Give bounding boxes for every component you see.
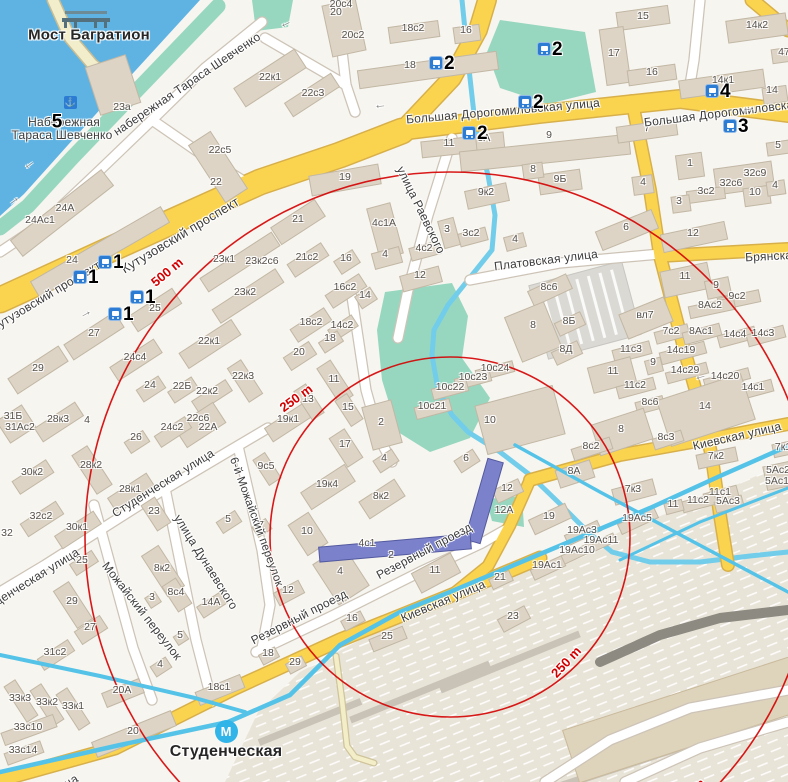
bus-stop-icon[interactable]: [462, 126, 476, 140]
building-number-label: 4: [381, 452, 387, 464]
building-number-label: 22к1: [198, 335, 220, 347]
building-number-label: 24с2: [161, 421, 184, 433]
building-number-label: 26: [130, 431, 142, 443]
bus-stop-icon[interactable]: [73, 270, 87, 284]
building-number-label: 5: [177, 629, 183, 641]
building-number-label: 5Ас1: [765, 475, 788, 487]
building-number-label: 6: [623, 221, 629, 233]
street-name-label: 6-й Можайский переулок: [227, 456, 285, 588]
building-number-label: 10: [749, 186, 761, 198]
building-number-label: 11: [608, 365, 619, 377]
stop-number-marker[interactable]: 2: [533, 93, 544, 112]
building-number-label: 8Д: [560, 343, 573, 355]
building-number-label: 28к3: [47, 413, 69, 425]
building-number-label: 4: [772, 179, 778, 191]
building-number-label: 10: [484, 414, 496, 426]
building-number-label: 16с2: [334, 281, 357, 293]
building-number-label: 13: [302, 393, 314, 405]
building-number-label: 2: [378, 416, 384, 428]
building-number-label: 8А: [568, 465, 581, 477]
street-name-label: набережная Тараса Шевченко: [111, 29, 263, 138]
building-number-label: 1: [687, 157, 693, 169]
building-number-label: 11с3: [620, 343, 642, 355]
building-number-label: 9: [713, 279, 719, 291]
metro-station-icon[interactable]: М: [215, 720, 238, 743]
building-number-label: 4с1: [359, 537, 376, 549]
building-number-label: 8с4: [168, 586, 185, 598]
building-number-label: 20: [330, 6, 342, 18]
street-name-label: Студенческая улица: [0, 545, 82, 619]
building-number-label: 22с5: [209, 144, 232, 156]
building-number-label: 20с4: [330, 0, 353, 10]
building-number-label: 22А: [199, 421, 218, 433]
building-number-label: 23к2с6: [245, 255, 278, 267]
oneway-arrow-icon: →: [3, 189, 22, 209]
building-number-label: 25: [381, 630, 393, 642]
building-number-label: 2: [388, 549, 394, 561]
building-number-label: 4: [382, 248, 388, 260]
building-number-label: 22к1: [259, 71, 281, 83]
building-number-label: 12: [414, 269, 426, 281]
street-name-label: Киевская улица: [399, 577, 488, 625]
building-number-label: 11: [329, 373, 340, 385]
building-number-label: 29: [66, 595, 78, 607]
building-number-label: 33к2: [36, 696, 58, 708]
building-number-label: 3: [149, 591, 155, 603]
building-number-label: 4: [84, 414, 90, 426]
building-number-label: 11: [444, 137, 455, 149]
building-number-label: 8: [530, 163, 536, 175]
building-number-label: 21: [292, 213, 304, 225]
building-number-label: 33с14: [9, 744, 38, 756]
street-name-label: улица Дунаевского: [171, 512, 241, 612]
building-number-label: 30к1: [66, 521, 88, 533]
building-number-label: 10: [301, 525, 313, 537]
building-number-label: 8: [618, 423, 624, 435]
stop-number-marker[interactable]: 1: [145, 288, 156, 307]
building-number-label: 18с2: [402, 22, 425, 34]
building-number-label: 14с3: [752, 327, 775, 339]
building-number-label: 24с4: [124, 351, 147, 363]
stop-number-marker[interactable]: 1: [113, 253, 124, 272]
building-number-label: 28к1: [119, 483, 141, 495]
building-number-label: 4: [512, 233, 518, 245]
building-number-label: 14с1: [742, 381, 765, 393]
building-number-label: 4: [157, 658, 163, 670]
building-number-label: 33к3: [9, 692, 31, 704]
building-number-label: 32с6: [720, 177, 743, 189]
building-number-label: 12: [282, 584, 294, 596]
building-number-label: 18: [262, 647, 274, 659]
building-number-label: 12А: [495, 504, 514, 516]
building-number-label: 4: [640, 176, 646, 188]
building-number-label: 19к1: [277, 413, 299, 425]
building-number-label: 3: [444, 223, 450, 235]
building-number-label: 8с3: [658, 431, 675, 443]
building-number-label: 19: [339, 171, 351, 183]
building-number-label: 14с4: [724, 328, 747, 340]
bus-stop-icon[interactable]: [108, 307, 122, 321]
building-number-label: 47: [778, 46, 788, 58]
building-number-label: 19Ас11: [584, 534, 619, 546]
building-number-label: 16: [340, 252, 352, 264]
building-number-label: 7: [258, 519, 264, 531]
building-number-label: 17: [608, 47, 620, 59]
building-number-label: 11с2: [687, 494, 709, 506]
building-number-label: 11: [668, 498, 679, 510]
building-number-label: 23к1: [213, 253, 235, 265]
building-number-label: 9: [546, 129, 552, 141]
building-number-label: 32: [1, 527, 13, 539]
place-name-label: Студенческая: [170, 743, 283, 761]
building-number-label: 24: [144, 379, 156, 391]
building-number-label: 18: [404, 59, 416, 71]
building-number-label: 27: [84, 621, 96, 633]
building-number-label: 5: [775, 139, 781, 151]
building-number-label: 6: [463, 452, 469, 464]
building-number-label: 14с29: [671, 364, 700, 376]
building-number-label: 33с10: [14, 721, 43, 733]
street-name-label: Резервный проезд: [374, 520, 474, 582]
building-number-label: 8: [530, 319, 536, 331]
building-number-label: 8к2: [373, 490, 389, 502]
street-name-label: Студенческая улица: [109, 446, 216, 520]
building-number-label: 20с2: [342, 29, 365, 41]
street-name-label: Киевская улица: [691, 419, 782, 453]
stop-number-marker[interactable]: 2: [477, 124, 488, 143]
building-number-label: 14А: [202, 596, 221, 608]
building-number-label: вл7: [636, 309, 653, 321]
stop-number-marker[interactable]: 1: [88, 268, 99, 287]
bus-stop-icon[interactable]: [705, 84, 719, 98]
building-number-label: 16: [646, 66, 658, 78]
pier-anchor-icon[interactable]: ⚓: [64, 96, 77, 109]
building-number-label: 31Ас2: [5, 421, 35, 433]
building-number-label: 12: [501, 482, 513, 494]
building-number-label: 22Б: [173, 380, 192, 392]
building-number-label: 4с2: [416, 242, 433, 254]
street-name-label: Резервный проезд: [249, 587, 350, 648]
building-number-label: 27: [88, 327, 100, 339]
building-number-label: 22к3: [232, 370, 254, 382]
stop-number-marker[interactable]: 2: [444, 54, 455, 73]
building-number-label: 8с2: [583, 440, 600, 452]
oneway-arrow-icon: ←: [373, 96, 387, 112]
building-number-label: 22: [210, 176, 222, 188]
building-number-label: 8Ас2: [698, 299, 722, 311]
building-number-label: 3: [676, 195, 682, 207]
building-number-label: 23: [507, 610, 519, 622]
street-name-label: улица Раевского: [394, 164, 448, 256]
building-number-label: 8с6: [541, 281, 558, 293]
bus-stop-icon[interactable]: [429, 56, 443, 70]
radius-distance-label: 500 m: [672, 776, 709, 782]
building-number-label: 14: [359, 289, 371, 301]
bus-stop-icon[interactable]: [723, 119, 737, 133]
building-number-label: 23: [148, 505, 160, 517]
stop-number-marker[interactable]: 1: [123, 305, 134, 324]
bus-stop-icon[interactable]: [518, 95, 532, 109]
building-number-label: 23к2: [234, 286, 256, 298]
building-number-label: 20: [293, 346, 305, 358]
radius-distance-label: 250 m: [277, 381, 316, 415]
building-number-label: 28к2: [80, 459, 102, 471]
building-number-label: 11с1: [709, 486, 731, 498]
building-number-label: 9к2: [478, 186, 494, 198]
bus-stop-icon[interactable]: [537, 42, 551, 56]
building-number-label: 22с6: [187, 412, 210, 424]
street-name-label: Киевская улица: [0, 771, 81, 782]
building-number-label: 5: [225, 513, 231, 525]
building-number-label: 5Ас3: [716, 495, 740, 507]
building-number-label: 32с2: [30, 510, 53, 522]
building-number-label: 11: [680, 270, 691, 282]
building-number-label: 18: [324, 332, 336, 344]
building-number-label: 22с3: [302, 87, 325, 99]
oneway-arrow-icon: ←: [692, 366, 708, 384]
building-number-label: 14: [699, 400, 711, 412]
building-number-label: 16: [460, 24, 472, 36]
building-number-label: 3с2: [698, 185, 715, 197]
building-number-label: 19Ас10: [559, 544, 595, 556]
building-number-label: 14с19: [667, 344, 696, 356]
street-name-label: Большая Дорогомиловская улица: [405, 96, 600, 127]
building-number-label: 5Ас2: [766, 464, 788, 476]
building-number-label: 25: [76, 554, 88, 566]
poi-number-marker[interactable]: 5: [52, 113, 63, 132]
stop-number-marker[interactable]: 4: [720, 82, 731, 101]
building-number-label: 10с21: [418, 400, 447, 412]
building-number-label: 18с1: [208, 681, 231, 693]
street-name-label: Большая Дорогомиловская: [643, 96, 788, 129]
bus-stop-icon[interactable]: [98, 255, 112, 269]
building-number-label: 11: [430, 564, 441, 576]
building-number-label: 29: [289, 656, 301, 668]
bus-stop-icon[interactable]: [130, 290, 144, 304]
street-name-label: Набережная: [28, 115, 100, 129]
building-number-label: 24А: [56, 202, 75, 214]
building-number-label: 20: [127, 725, 139, 737]
building-number-label: 15: [637, 10, 649, 22]
building-number-label: 31Б: [4, 410, 23, 422]
building-number-label: 7к1: [775, 441, 788, 453]
building-number-label: 10с24: [481, 362, 510, 374]
building-number-label: 21с2: [296, 251, 319, 263]
building-number-label: 15: [342, 401, 354, 413]
building-number-label: 14к2: [746, 19, 768, 31]
stop-number-marker[interactable]: 2: [552, 40, 563, 59]
building-number-label: 9Б: [554, 173, 567, 185]
stop-number-marker[interactable]: 3: [738, 117, 749, 136]
building-number-label: 21: [494, 571, 506, 583]
street-name-label: Можайский переулок: [99, 559, 184, 663]
building-number-label: 14с20: [711, 370, 740, 382]
radius-distance-label: 250 m: [548, 643, 584, 680]
building-number-label: 7: [644, 122, 650, 134]
building-number-label: 19: [543, 510, 555, 522]
building-number-label: 24: [66, 254, 78, 266]
building-number-label: 11с2: [624, 379, 646, 391]
building-number-label: 10с23: [459, 371, 488, 383]
building-number-label: 19Ас3: [567, 524, 597, 536]
map-viewport[interactable]: 20с42020с218с21622к122с31823а9А119151716…: [0, 0, 788, 782]
oneway-arrow-icon: ←: [741, 99, 756, 116]
building-number-label: 17: [339, 438, 351, 450]
building-number-label: 32с9: [744, 167, 767, 179]
building-number-label: 30к2: [21, 466, 43, 478]
building-number-label: 20А: [113, 684, 132, 696]
building-number-label: 12: [687, 227, 699, 239]
oneway-arrow-icon: →: [76, 302, 95, 321]
street-name-label: Кутузовский проспект: [118, 194, 241, 276]
building-number-label: 29: [32, 362, 44, 374]
building-number-label: 22к2: [196, 385, 218, 397]
oneway-arrow-icon: ←: [18, 153, 37, 173]
building-number-label: 10с22: [436, 381, 465, 393]
building-number-label: 8Б: [563, 315, 576, 327]
building-number-label: 33к1: [62, 700, 84, 712]
building-number-label: 23а: [113, 101, 131, 113]
building-number-label: 8с6: [642, 396, 659, 408]
building-number-label: 18с2: [300, 316, 323, 328]
building-number-label: 7к3: [625, 483, 641, 495]
building-number-label: 7с2: [663, 325, 680, 337]
building-number-label: 8к2: [154, 562, 170, 574]
building-number-label: 3с2: [463, 227, 480, 239]
building-number-label: 8Ас1: [689, 325, 713, 337]
building-number-label: 9с5: [258, 460, 275, 472]
building-number-label: 9с2: [729, 290, 746, 302]
building-number-label: 19к4: [316, 478, 338, 490]
radius-distance-label: 500 m: [148, 254, 186, 289]
place-name-label: Мост Багратион: [28, 27, 150, 44]
building-number-label: 24Ас1: [25, 214, 55, 226]
building-number-label: 4: [337, 565, 343, 577]
building-number-label: 14с2: [331, 319, 354, 331]
building-number-label: 19Ас5: [622, 512, 652, 524]
map-overlay: 20с42020с218с21622к122с31823а9А119151716…: [0, 0, 788, 782]
street-name-label: Платовская улица: [493, 247, 598, 274]
building-number-label: 19Ас1: [532, 559, 562, 571]
building-number-label: 14: [766, 84, 778, 96]
building-number-label: 9: [650, 356, 656, 368]
street-name-label: Брянская: [745, 248, 788, 265]
building-number-label: 31с2: [44, 646, 67, 658]
building-number-label: 7к2: [708, 450, 724, 462]
building-number-label: 16: [346, 612, 358, 624]
building-number-label: 4с1А: [372, 217, 396, 229]
oneway-arrow-icon: ←: [276, 12, 294, 31]
